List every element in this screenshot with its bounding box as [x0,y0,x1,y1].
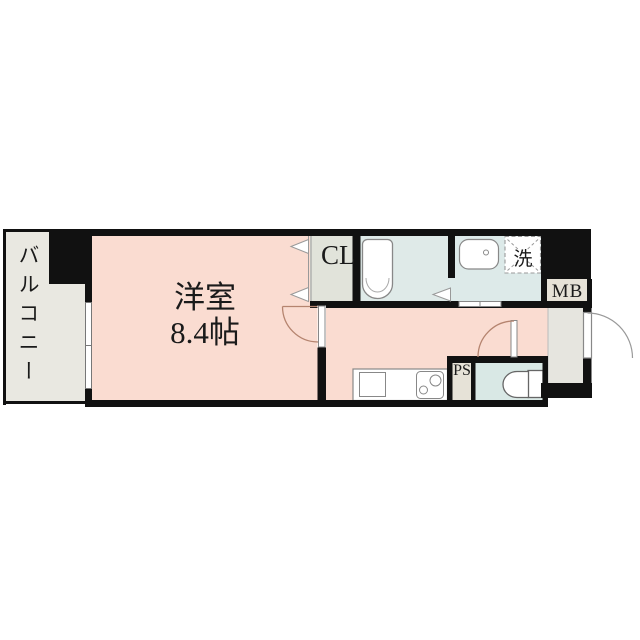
stove-burner-icon [420,386,428,394]
toilet-icon [503,372,528,398]
entrance-door-arc [588,313,633,358]
meter-box-label: MB [547,281,588,303]
kitchen-sink-icon [360,373,386,397]
entrance-area [548,307,584,384]
balcony-pillar [49,231,85,284]
room-door-leaf [319,306,326,347]
hall-door-leaf [511,321,517,358]
toilet-tank-icon [528,371,543,398]
sink-icon [460,240,499,270]
stove-burner-icon [430,375,441,386]
washer-label: 洗 [505,244,541,271]
washroom-sliding-door [459,302,501,307]
room-name-label: 洋室 [91,282,319,313]
floor-plan: バルコニー 洋室 8.4帖 CL 洗 MB PS [0,0,640,640]
bathtub-icon [363,240,393,299]
faucet-dot-icon [484,250,489,255]
room-size-label: 8.4帖 [91,317,319,348]
balcony-label: バルコニー [13,244,43,402]
closet-label: CL [321,240,344,271]
pipe-space-label: PS [452,361,472,381]
entrance-door-leaf [584,313,592,359]
